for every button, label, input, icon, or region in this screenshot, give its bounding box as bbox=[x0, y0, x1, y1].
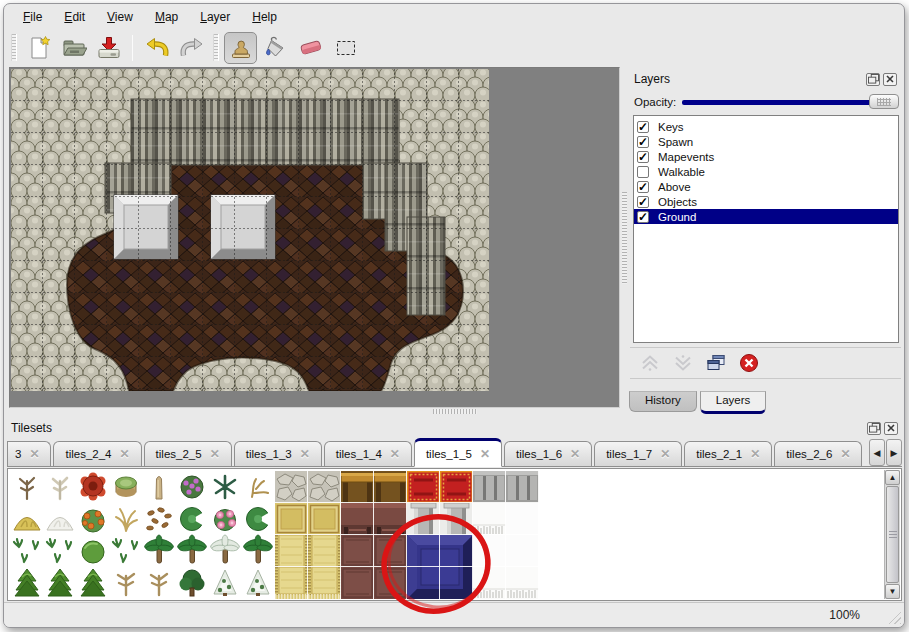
paint-bucket-icon bbox=[263, 35, 289, 61]
app-window: FileEditViewMapLayerHelp bbox=[3, 3, 905, 628]
layer-name: Keys bbox=[658, 121, 684, 133]
close-tab-icon[interactable]: ✕ bbox=[390, 447, 400, 461]
menu-edit[interactable]: Edit bbox=[53, 8, 96, 26]
tileset-content[interactable]: ▲ ▼ bbox=[7, 468, 902, 601]
toolbar bbox=[7, 29, 903, 66]
selection-rect-icon bbox=[333, 35, 359, 61]
opacity-slider[interactable] bbox=[682, 94, 899, 110]
layer-row-spawn[interactable]: ✓ Spawn bbox=[634, 134, 898, 149]
splitter-grip[interactable] bbox=[433, 409, 477, 414]
tileset-tab-label: tiles_1_4 bbox=[336, 448, 382, 460]
close-tab-icon[interactable]: ✕ bbox=[480, 447, 490, 461]
resize-grip-icon[interactable] bbox=[884, 607, 901, 624]
tileset-tab-label: 3 bbox=[15, 448, 21, 460]
close-panel-button[interactable] bbox=[884, 422, 898, 435]
close-panel-button[interactable] bbox=[883, 73, 897, 86]
layers-panel: Layers Opacity: ✓ Keys ✓ Spawn ✓ Mapeven… bbox=[628, 67, 903, 414]
float-panel-button[interactable] bbox=[867, 422, 881, 435]
delete-icon bbox=[738, 352, 760, 374]
duplicate-icon bbox=[705, 352, 727, 374]
layer-buttons-row bbox=[630, 347, 901, 379]
menu-view[interactable]: View bbox=[96, 8, 144, 26]
chevron-down-icon bbox=[672, 352, 694, 374]
undo-button[interactable] bbox=[140, 32, 173, 64]
tileset-grid[interactable] bbox=[11, 471, 539, 599]
tileset-tab-tiles_2_1[interactable]: tiles_2_1 ✕ bbox=[684, 441, 772, 466]
tileset-tabbar: 3 ✕ tiles_2_4 ✕ tiles_2_5 ✕ tiles_1_3 ✕ … bbox=[7, 437, 902, 467]
arrow-down-icon: ▼ bbox=[889, 587, 897, 596]
tileset-tab-tiles_1_5[interactable]: tiles_1_5 ✕ bbox=[414, 438, 502, 467]
layer-visibility-checkbox[interactable] bbox=[637, 166, 649, 178]
menu-file[interactable]: File bbox=[12, 8, 53, 26]
close-tab-icon[interactable]: ✕ bbox=[660, 447, 670, 461]
float-icon bbox=[868, 74, 879, 84]
open-button[interactable] bbox=[57, 32, 90, 64]
save-icon bbox=[96, 35, 122, 61]
tileset-tab-label: tiles_1_6 bbox=[516, 448, 562, 460]
layer-name: Spawn bbox=[658, 136, 693, 148]
select-tool-button[interactable] bbox=[329, 32, 362, 64]
tileset-tab-tiles_2_5[interactable]: tiles_2_5 ✕ bbox=[144, 441, 232, 466]
redo-arrow-icon bbox=[179, 35, 205, 61]
menu-layer[interactable]: Layer bbox=[189, 8, 241, 26]
close-tab-icon[interactable]: ✕ bbox=[840, 447, 850, 461]
tileset-tab-tiles_1_7[interactable]: tiles_1_7 ✕ bbox=[594, 441, 682, 466]
horizontal-splitter[interactable] bbox=[4, 406, 905, 416]
close-tab-icon[interactable]: ✕ bbox=[750, 447, 760, 461]
fill-tool-button[interactable] bbox=[259, 32, 292, 64]
tileset-tab-tiles_1_4[interactable]: tiles_1_4 ✕ bbox=[324, 441, 412, 466]
tileset-tab-label: tiles_2_4 bbox=[65, 448, 111, 460]
tileset-tab-tiles_2_4[interactable]: tiles_2_4 ✕ bbox=[53, 441, 141, 466]
layer-row-walkable[interactable]: Walkable bbox=[634, 164, 898, 179]
opacity-slider-track[interactable] bbox=[682, 100, 895, 105]
opacity-slider-handle[interactable] bbox=[869, 94, 899, 109]
undo-arrow-icon bbox=[144, 35, 170, 61]
menu-help[interactable]: Help bbox=[241, 8, 288, 26]
close-tab-icon[interactable]: ✕ bbox=[120, 447, 130, 461]
stamp-icon bbox=[228, 35, 254, 61]
tileset-tab-tiles_1_6[interactable]: tiles_1_6 ✕ bbox=[504, 441, 592, 466]
tileset-tab-tiles_2_6[interactable]: tiles_2_6 ✕ bbox=[774, 441, 862, 466]
zoom-level: 100% bbox=[829, 608, 860, 622]
open-folder-icon bbox=[61, 35, 87, 61]
menu-bar: FileEditViewMapLayerHelp bbox=[4, 6, 904, 28]
chevron-up-icon bbox=[639, 352, 661, 374]
delete-layer-button[interactable] bbox=[737, 351, 761, 375]
layers-panel-title: Layers bbox=[634, 72, 670, 86]
status-bar: 100% bbox=[4, 602, 904, 627]
new-file-icon bbox=[26, 35, 52, 61]
layer-visibility-checkbox[interactable]: ✓ bbox=[637, 181, 649, 193]
layer-list: ✓ Keys ✓ Spawn ✓ Mapevents Walkable ✓ Ab… bbox=[633, 115, 899, 343]
layer-visibility-checkbox[interactable]: ✓ bbox=[637, 196, 649, 208]
tileset-scrollbar[interactable]: ▲ ▼ bbox=[884, 470, 900, 599]
toolbar-grip[interactable] bbox=[213, 34, 219, 61]
layer-row-ground[interactable]: ✓ Ground bbox=[634, 209, 898, 224]
close-icon bbox=[886, 423, 896, 433]
scrollbar-thumb[interactable] bbox=[886, 486, 899, 583]
map-viewport[interactable] bbox=[9, 67, 620, 408]
layer-row-mapevents[interactable]: ✓ Mapevents bbox=[634, 149, 898, 164]
close-tab-icon[interactable]: ✕ bbox=[210, 447, 220, 461]
move-layer-down-button[interactable] bbox=[671, 351, 695, 375]
float-panel-button[interactable] bbox=[866, 73, 880, 86]
layer-visibility-checkbox[interactable]: ✓ bbox=[637, 211, 649, 223]
layer-name: Ground bbox=[658, 211, 696, 223]
tileset-tab-label: tiles_1_3 bbox=[246, 448, 292, 460]
tilesets-panel: Tilesets 3 ✕ tiles_2_4 ✕ tiles_2_5 ✕ til… bbox=[5, 416, 904, 604]
layer-row-objects[interactable]: ✓ Objects bbox=[634, 194, 898, 209]
map-canvas[interactable] bbox=[11, 69, 489, 391]
layer-name: Above bbox=[658, 181, 691, 193]
redo-button[interactable] bbox=[175, 32, 208, 64]
stamp-tool-button[interactable] bbox=[224, 32, 257, 64]
arrow-right-icon: ▶ bbox=[891, 448, 898, 458]
tileset-tab-label: tiles_2_1 bbox=[696, 448, 742, 460]
tileset-tab-label: tiles_1_7 bbox=[606, 448, 652, 460]
arrow-up-icon: ▲ bbox=[889, 473, 897, 482]
new-file-button[interactable] bbox=[22, 32, 55, 64]
tileset-tab-3[interactable]: 3 ✕ bbox=[7, 441, 51, 466]
close-tab-icon[interactable]: ✕ bbox=[570, 447, 580, 461]
splitter-grip[interactable] bbox=[622, 192, 627, 284]
tileset-tabs: 3 ✕ tiles_2_4 ✕ tiles_2_5 ✕ tiles_1_3 ✕ … bbox=[7, 437, 864, 466]
arrow-left-icon: ◀ bbox=[874, 448, 881, 458]
move-layer-up-button[interactable] bbox=[638, 351, 662, 375]
layer-name: Walkable bbox=[658, 166, 705, 178]
tileset-tab-label: tiles_2_5 bbox=[156, 448, 202, 460]
scroll-up-button[interactable]: ▲ bbox=[885, 470, 900, 485]
layer-name: Objects bbox=[658, 196, 697, 208]
layer-visibility-checkbox[interactable]: ✓ bbox=[637, 121, 649, 133]
close-tab-icon[interactable]: ✕ bbox=[300, 447, 310, 461]
scroll-down-button[interactable]: ▼ bbox=[885, 584, 900, 599]
layer-name: Mapevents bbox=[658, 151, 714, 163]
layer-visibility-checkbox[interactable]: ✓ bbox=[637, 151, 649, 163]
tilesets-panel-title: Tilesets bbox=[11, 421, 52, 435]
float-icon bbox=[869, 423, 880, 433]
scroll-tabs-left-button[interactable]: ◀ bbox=[869, 439, 885, 466]
eraser-tool-button[interactable] bbox=[294, 32, 327, 64]
close-tab-icon[interactable]: ✕ bbox=[29, 447, 39, 461]
eraser-icon bbox=[298, 35, 324, 61]
save-button[interactable] bbox=[92, 32, 125, 64]
layer-visibility-checkbox[interactable]: ✓ bbox=[637, 136, 649, 148]
tileset-tab-label: tiles_2_6 bbox=[786, 448, 832, 460]
opacity-label: Opacity: bbox=[634, 96, 676, 108]
scroll-tabs-right-button[interactable]: ▶ bbox=[886, 439, 902, 466]
layer-row-keys[interactable]: ✓ Keys bbox=[634, 119, 898, 134]
tileset-tab-tiles_1_3[interactable]: tiles_1_3 ✕ bbox=[234, 441, 322, 466]
menu-map[interactable]: Map bbox=[144, 8, 189, 26]
toolbar-separator bbox=[132, 35, 133, 61]
vertical-splitter[interactable] bbox=[621, 67, 627, 408]
toolbar-grip[interactable] bbox=[11, 34, 17, 61]
tileset-tab-label: tiles_1_5 bbox=[426, 448, 472, 460]
duplicate-layer-button[interactable] bbox=[704, 351, 728, 375]
close-icon bbox=[885, 74, 895, 84]
layer-row-above[interactable]: ✓ Above bbox=[634, 179, 898, 194]
